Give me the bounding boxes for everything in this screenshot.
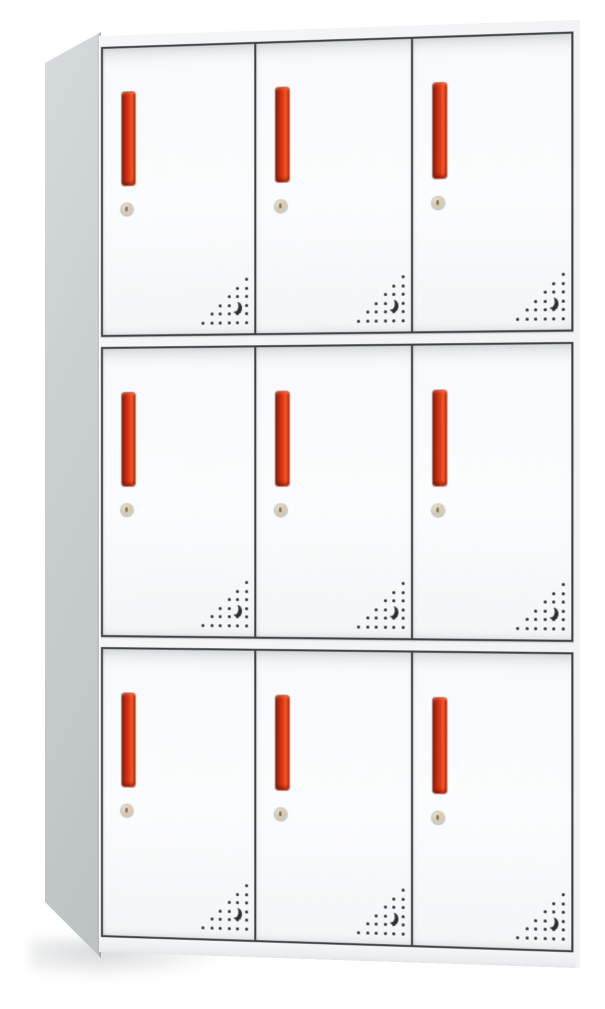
keyhole-icon (275, 200, 287, 212)
vent-dot (227, 295, 230, 298)
keyhole-slot (279, 203, 282, 208)
locker-door-r3-c3 (411, 653, 571, 951)
vent-dot (401, 310, 404, 313)
door-handle-icon (433, 390, 447, 485)
vent-dot (245, 278, 248, 281)
vent-dot (227, 901, 230, 904)
vent-dot (245, 607, 248, 610)
vent-dot (245, 286, 248, 289)
locker-door-r1-c2 (254, 39, 411, 333)
vent-dot (392, 284, 395, 287)
vent-dot (245, 624, 248, 627)
vent-dot (383, 608, 386, 611)
door-handle-icon (122, 693, 135, 786)
vent-dot (561, 308, 564, 311)
vent-holes (516, 273, 565, 322)
vent-dot (227, 918, 230, 921)
door-handle-icon (122, 92, 135, 186)
vent-dot (552, 600, 555, 603)
vent-dot (561, 618, 564, 621)
locker-door-r2-c2 (254, 346, 411, 639)
door-handle-icon (433, 698, 447, 794)
vent-dot (219, 304, 222, 307)
vent-dot (245, 590, 248, 593)
vent-dot (245, 321, 248, 324)
vent-holes (357, 275, 405, 324)
vent-dot (401, 599, 404, 602)
vent-dot (561, 273, 564, 276)
vent-dot (383, 293, 386, 296)
vent-dot (383, 319, 386, 322)
vent-dot (561, 282, 564, 285)
vent-crescent-hole (389, 606, 398, 618)
vent-dot (561, 893, 564, 896)
vent-dot (525, 936, 528, 939)
vent-dot (245, 918, 248, 921)
vent-holes (357, 582, 405, 630)
vent-dot (534, 317, 537, 320)
keyhole-slot (125, 808, 128, 813)
vent-dot (383, 599, 386, 602)
vent-dot (357, 319, 360, 322)
vent-dot (219, 909, 222, 912)
vent-dot (552, 290, 555, 293)
vent-dot (245, 581, 248, 584)
vent-dot (201, 321, 204, 324)
vent-dot (227, 909, 230, 912)
vent-dot (401, 932, 404, 935)
vent-dot (210, 917, 213, 920)
vent-dot (357, 625, 360, 628)
vent-dot (366, 922, 369, 925)
vent-dot (525, 618, 528, 621)
locker-door-r1-c3 (411, 34, 571, 332)
locker-row-3 (101, 647, 573, 952)
vent-dot (525, 317, 528, 320)
vent-dot (375, 310, 378, 313)
vent-dot (375, 302, 378, 305)
vent-dot (534, 609, 537, 612)
vent-dot (383, 310, 386, 313)
vent-dot (543, 919, 546, 922)
vent-dot (401, 617, 404, 620)
vent-dot (366, 616, 369, 619)
vent-dot (375, 319, 378, 322)
vent-dot (201, 926, 204, 929)
vent-dot (245, 615, 248, 618)
vent-dot (245, 295, 248, 298)
keyhole-icon (432, 504, 445, 516)
vent-dot (561, 299, 564, 302)
vent-dot (210, 321, 213, 324)
vent-dot (227, 304, 230, 307)
vent-crescent-hole (389, 299, 398, 311)
vent-dot (401, 608, 404, 611)
vent-dot (383, 931, 386, 934)
vent-dot (543, 936, 546, 939)
vent-dot (525, 308, 528, 311)
vent-dot (552, 627, 555, 630)
vent-dot (227, 312, 230, 315)
vent-dot (401, 915, 404, 918)
keyhole-icon (275, 504, 287, 516)
vent-dot (561, 937, 564, 940)
vent-dot (543, 291, 546, 294)
vent-dot (534, 927, 537, 930)
vent-holes (201, 883, 248, 932)
vent-dot (561, 627, 564, 630)
vent-dot (366, 310, 369, 313)
vent-holes (516, 583, 565, 632)
vent-dot (561, 919, 564, 922)
vent-dot (227, 927, 230, 930)
vent-crescent-hole (233, 908, 242, 920)
locker-cabinet-photo (0, 0, 605, 1009)
vent-dot (245, 910, 248, 913)
vent-dot (561, 290, 564, 293)
vent-dot (543, 317, 546, 320)
vent-dot (543, 609, 546, 612)
vent-dot (245, 598, 248, 601)
vent-dot (392, 599, 395, 602)
keyhole-icon (121, 203, 133, 215)
vent-dot (210, 624, 213, 627)
locker-door-r3-c2 (254, 651, 411, 945)
vent-dot (383, 905, 386, 908)
vent-dot (245, 901, 248, 904)
vent-holes (357, 887, 405, 936)
vent-dot (561, 911, 564, 914)
vent-dot (401, 275, 404, 278)
vent-crescent-hole (549, 607, 559, 619)
vent-dot (401, 591, 404, 594)
vent-dot (401, 319, 404, 322)
vent-dot (210, 615, 213, 618)
vent-dot (392, 293, 395, 296)
vent-dot (219, 615, 222, 618)
door-handle-icon (276, 87, 289, 182)
vent-dot (210, 926, 213, 929)
vent-dot (375, 625, 378, 628)
vent-dot (534, 299, 537, 302)
vent-dot (383, 625, 386, 628)
vent-dot (552, 592, 555, 595)
locker-door-r3-c1 (103, 649, 254, 940)
vent-dot (543, 928, 546, 931)
vent-dot (392, 625, 395, 628)
vent-dot (401, 301, 404, 304)
vent-dot (375, 608, 378, 611)
vent-dot (543, 600, 546, 603)
vent-dot (236, 598, 239, 601)
door-handle-icon (276, 392, 289, 486)
vent-dot (561, 609, 564, 612)
vent-dot (219, 321, 222, 324)
vent-dot (236, 901, 239, 904)
vent-dot (516, 317, 519, 320)
vent-dot (383, 914, 386, 917)
vent-dot (401, 625, 404, 628)
vent-dot (227, 615, 230, 618)
vent-dot (392, 897, 395, 900)
vent-dot (375, 931, 378, 934)
vent-dot (383, 616, 386, 619)
vent-dot (375, 914, 378, 917)
vent-dot (543, 627, 546, 630)
vent-dot (561, 928, 564, 931)
vent-dot (534, 936, 537, 939)
keyhole-slot (436, 200, 439, 205)
vent-crescent-hole (389, 912, 398, 925)
vent-dot (383, 302, 386, 305)
vent-dot (552, 282, 555, 285)
vent-dot (219, 624, 222, 627)
door-handle-icon (276, 696, 289, 790)
vent-dot (534, 308, 537, 311)
vent-dot (392, 906, 395, 909)
vent-dot (375, 616, 378, 619)
vent-dot (227, 624, 230, 627)
vent-dot (357, 931, 360, 934)
vent-dot (245, 303, 248, 306)
vent-holes (201, 581, 248, 629)
vent-dot (401, 897, 404, 900)
door-handle-icon (433, 83, 447, 179)
keyhole-slot (125, 507, 128, 512)
vent-dot (375, 922, 378, 925)
vent-dot (383, 923, 386, 926)
vent-dot (525, 627, 528, 630)
keyhole-slot (279, 507, 282, 512)
vent-dot (561, 600, 564, 603)
vent-dot (552, 317, 555, 320)
keyhole-slot (436, 507, 439, 512)
keyhole-slot (279, 811, 282, 816)
vent-dot (219, 606, 222, 609)
vent-holes (201, 278, 248, 326)
vent-dot (227, 321, 230, 324)
vent-dot (401, 889, 404, 892)
vent-dot (366, 931, 369, 934)
vent-dot (561, 583, 564, 586)
vent-dot (401, 906, 404, 909)
vent-crescent-hole (549, 917, 559, 930)
vent-dot (525, 927, 528, 930)
vent-dot (552, 937, 555, 940)
vent-dot (236, 295, 239, 298)
vent-dot (516, 936, 519, 939)
vent-dot (543, 308, 546, 311)
locker-row-1 (101, 31, 573, 336)
vent-dot (245, 927, 248, 930)
vent-dot (534, 618, 537, 621)
vent-dot (561, 317, 564, 320)
vent-dot (201, 623, 204, 626)
vent-dot (552, 902, 555, 905)
vent-dot (392, 932, 395, 935)
keyhole-slot (125, 206, 128, 211)
keyhole-icon (121, 804, 133, 816)
vent-dot (561, 592, 564, 595)
vent-dot (401, 284, 404, 287)
keyhole-icon (121, 504, 133, 516)
vent-dot (245, 312, 248, 315)
locker-row-2 (101, 342, 573, 642)
vent-dot (219, 312, 222, 315)
vent-crescent-hole (549, 297, 559, 310)
vent-dot (401, 293, 404, 296)
vent-dot (236, 286, 239, 289)
locker-door-grid (101, 31, 573, 952)
locker-door-r1-c1 (103, 44, 254, 335)
vent-dot (392, 591, 395, 594)
vent-dot (210, 312, 213, 315)
locker-door-r2-c3 (411, 344, 571, 640)
vent-dot (561, 902, 564, 905)
cabinet-side-panel (45, 32, 101, 958)
vent-dot (219, 926, 222, 929)
vent-dot (245, 884, 248, 887)
vent-dot (543, 910, 546, 913)
vent-crescent-hole (233, 605, 242, 617)
vent-dot (534, 919, 537, 922)
vent-dot (236, 321, 239, 324)
vent-dot (236, 927, 239, 930)
keyhole-slot (436, 815, 439, 820)
vent-dot (219, 918, 222, 921)
vent-dot (516, 626, 519, 629)
vent-dot (366, 319, 369, 322)
vent-dot (236, 589, 239, 592)
locker-door-r2-c1 (103, 347, 254, 636)
vent-dot (543, 299, 546, 302)
vent-dot (245, 893, 248, 896)
vent-dot (227, 598, 230, 601)
keyhole-icon (275, 808, 287, 820)
vent-dot (401, 923, 404, 926)
vent-dot (236, 892, 239, 895)
keyhole-icon (432, 197, 445, 210)
cabinet-front-face (99, 20, 580, 968)
vent-dot (543, 618, 546, 621)
vent-dot (401, 582, 404, 585)
vent-dot (392, 319, 395, 322)
vent-dot (227, 607, 230, 610)
door-handle-icon (122, 393, 135, 486)
vent-dot (552, 910, 555, 913)
vent-dot (236, 624, 239, 627)
vent-holes (516, 892, 565, 942)
keyhole-icon (432, 812, 445, 825)
vent-dot (534, 627, 537, 630)
vent-crescent-hole (233, 302, 242, 314)
vent-dot (366, 625, 369, 628)
